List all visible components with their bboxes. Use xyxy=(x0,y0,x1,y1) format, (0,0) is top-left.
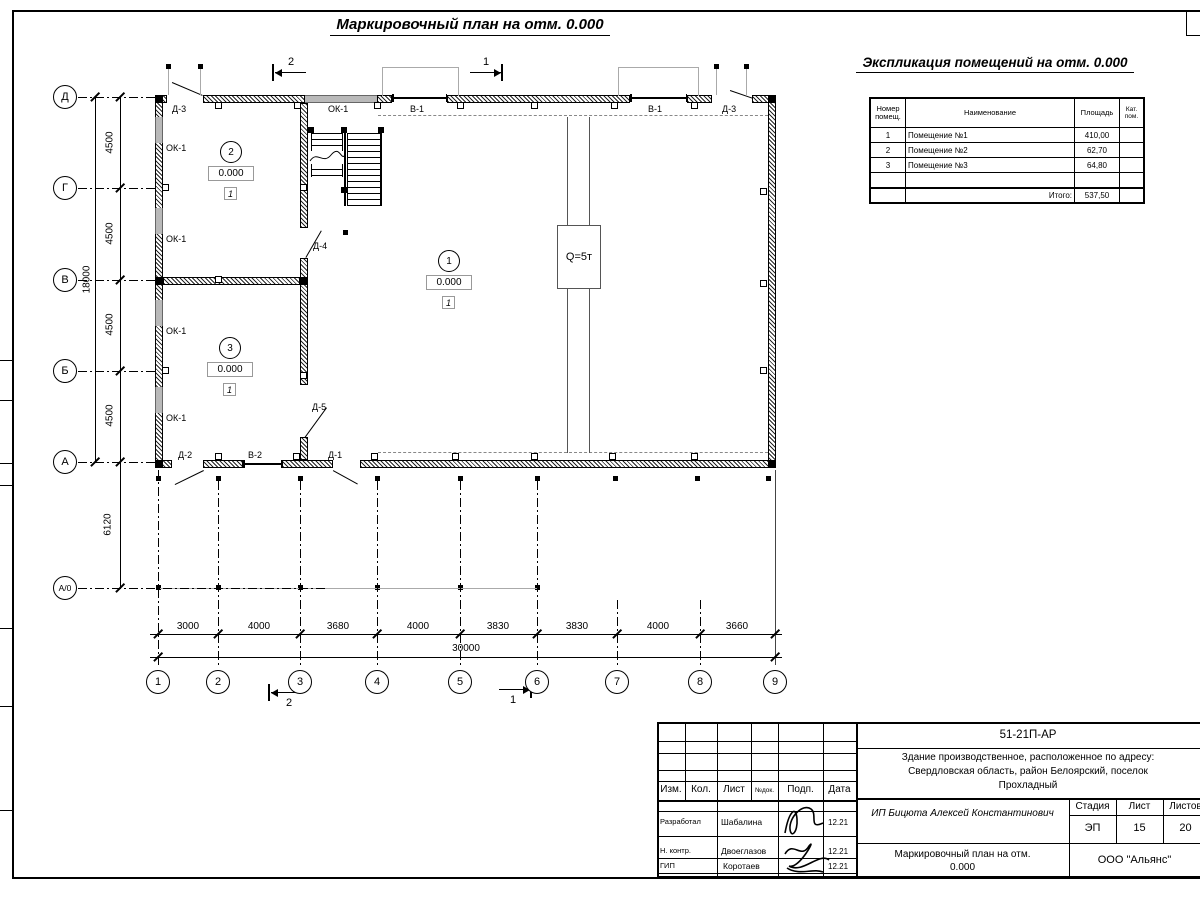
window-label: ОК-1 xyxy=(166,234,186,244)
axis-line xyxy=(537,481,538,665)
room-number-circle: 2 xyxy=(220,141,242,163)
corner-column xyxy=(155,460,163,468)
tb-project-line: Прохладный xyxy=(858,780,1198,791)
cell-name: Помещение №1 xyxy=(906,128,1075,143)
dim-line-h xyxy=(150,634,782,635)
window-ok1-top xyxy=(305,95,377,103)
crane-zone-dashed xyxy=(378,115,768,116)
wall-column xyxy=(760,188,767,195)
dim-value: 4000 xyxy=(229,621,289,632)
junction-column xyxy=(299,277,307,285)
wall-top xyxy=(447,95,630,103)
canopy-column xyxy=(458,476,463,481)
table-row: 1 Помещение №1 410,00 xyxy=(870,128,1144,143)
room-category: 1 xyxy=(442,296,455,309)
wall-column xyxy=(760,367,767,374)
tb-signer-role: Н. контр. xyxy=(660,846,691,855)
wall-column xyxy=(531,453,538,460)
wall-column xyxy=(300,184,307,191)
tb-sheet-value: 15 xyxy=(1116,822,1163,834)
cell-name: Помещение №3 xyxy=(906,158,1075,173)
dim-value: 6120 xyxy=(103,510,114,540)
window-label: ОК-1 xyxy=(328,104,348,114)
corner-doc-box xyxy=(1186,10,1200,36)
room-elevation: 0.000 xyxy=(207,362,253,377)
wall-column xyxy=(531,102,538,109)
axis-col-circle: 8 xyxy=(688,670,712,694)
cell-cat xyxy=(1120,158,1145,173)
cell-area: 64,80 xyxy=(1075,158,1120,173)
dim-value: 4500 xyxy=(105,128,116,158)
stair-divider xyxy=(344,127,346,206)
axis-row-circle: Г xyxy=(53,176,77,200)
column-dot xyxy=(343,230,348,235)
dim-value: 4500 xyxy=(105,310,116,340)
tb-project-line: Свердловская область, район Белоярский, … xyxy=(858,766,1198,777)
window-label: ОК-1 xyxy=(166,413,186,423)
tb-header-kol: Кол. xyxy=(685,784,717,795)
window-label: ОК-1 xyxy=(166,326,186,336)
canopy-column xyxy=(298,476,303,481)
table-row: 2 Помещение №2 62,70 xyxy=(870,143,1144,158)
wall-bottom xyxy=(282,460,333,468)
margin-divider xyxy=(0,706,12,707)
table-row: 3 Помещение №3 64,80 xyxy=(870,158,1144,173)
crane-zone-dashed xyxy=(378,452,768,453)
room-number-circle: 3 xyxy=(219,337,241,359)
door-leaf-d3 xyxy=(172,82,203,96)
section-mark-bar xyxy=(272,64,274,81)
wall-column xyxy=(609,453,616,460)
col-header-num: Номер помещ. xyxy=(870,98,906,128)
margin-divider xyxy=(0,400,12,401)
axis-col-circle: 3 xyxy=(288,670,312,694)
door-label: Д-4 xyxy=(313,241,327,251)
stairwell-wall xyxy=(381,127,382,206)
axis-row-circle: Б xyxy=(53,359,77,383)
dim-line-v-total xyxy=(95,97,96,462)
axis-col-circle: 9 xyxy=(763,670,787,694)
door-label: Д-5 xyxy=(312,402,326,412)
signature xyxy=(779,838,833,876)
margin-divider xyxy=(0,810,12,811)
canopy-column xyxy=(766,476,771,481)
stair-flight-right xyxy=(347,133,381,206)
tb-stage-value: ЭП xyxy=(1069,822,1116,834)
tb-signer-role: ГИП xyxy=(660,861,675,870)
gate-label: В-1 xyxy=(648,104,662,114)
frame-left xyxy=(12,10,14,878)
crane-capacity-label: Q=5т xyxy=(566,251,592,263)
wall-column xyxy=(294,102,301,109)
dim-value: 4000 xyxy=(628,621,688,632)
gate-ramp xyxy=(618,67,699,96)
tb-line xyxy=(657,741,856,742)
stair-column xyxy=(341,187,347,193)
window-ok1-left xyxy=(155,300,163,326)
tb-line xyxy=(657,781,856,782)
wall-column xyxy=(457,102,464,109)
tb-project-line: Здание производственное, расположенное п… xyxy=(858,752,1198,763)
axis-row-circle: В xyxy=(53,268,77,292)
tb-header-podp: Подп. xyxy=(778,784,823,795)
signature xyxy=(781,799,827,841)
tb-doc-number: 51-21П-АР xyxy=(856,729,1200,741)
door-label: Д-3 xyxy=(722,104,736,114)
tb-sheets-value: 20 xyxy=(1163,822,1200,834)
axis-col-circle: 6 xyxy=(525,670,549,694)
col-header-name: Наименование xyxy=(906,98,1075,128)
wall-column xyxy=(215,102,222,109)
axis-line-1 xyxy=(158,470,159,665)
margin-divider xyxy=(0,360,12,361)
tb-drawing-title: Маркировочный план на отм. xyxy=(858,849,1067,860)
cell-cat xyxy=(1120,143,1145,158)
corner-column xyxy=(768,95,776,103)
canopy-column xyxy=(613,476,618,481)
axis-col-circle: 4 xyxy=(365,670,389,694)
drawing-sheet: Маркировочный план на отм. 0.000 Эксплик… xyxy=(0,0,1200,900)
gate-label: В-2 xyxy=(248,450,262,460)
section-arrow-left xyxy=(275,69,282,77)
wall-column xyxy=(162,367,169,374)
axis-col-circle: 7 xyxy=(605,670,629,694)
gate-v1-opening xyxy=(630,97,687,99)
dim-line-v xyxy=(120,97,121,588)
margin-divider xyxy=(0,485,12,486)
tb-line xyxy=(657,753,856,754)
dim-total-value: 30000 xyxy=(436,643,496,654)
door-label: Д-1 xyxy=(328,450,342,460)
tb-header-izm: Изм. xyxy=(657,784,685,795)
tb-header-data: Дата xyxy=(823,784,856,795)
section-arrow-left xyxy=(271,689,278,697)
tb-line xyxy=(856,843,1200,844)
axis-line xyxy=(300,481,301,665)
window-ok1-left xyxy=(155,208,163,234)
window-label: ОК-1 xyxy=(166,143,186,153)
room-category: 1 xyxy=(224,187,237,200)
frame-top xyxy=(12,10,1200,12)
tb-sheet-header: Лист xyxy=(1116,801,1163,812)
wall-column xyxy=(374,102,381,109)
axis-line-9 xyxy=(775,470,776,665)
axis-row-circle: А xyxy=(53,450,77,474)
wall-column xyxy=(760,280,767,287)
tb-sheets-header: Листов xyxy=(1163,801,1200,812)
wall-column xyxy=(215,453,222,460)
landing-edge xyxy=(716,66,717,95)
landing-post xyxy=(198,64,203,69)
wall-interior-vertical xyxy=(300,437,308,460)
cell-num: 2 xyxy=(870,143,906,158)
stair-column xyxy=(308,127,314,133)
cell-num: 3 xyxy=(870,158,906,173)
col-header-area: Площадь xyxy=(1075,98,1120,128)
door-leaf-d3 xyxy=(730,90,753,99)
stair-break-curve xyxy=(308,148,346,166)
gate-ramp xyxy=(382,67,459,96)
door-label: Д-2 xyxy=(178,450,192,460)
tb-client: ИП Бицюта Алексей Константинович xyxy=(858,808,1067,819)
margin-divider xyxy=(0,628,12,629)
gate-label: В-1 xyxy=(410,104,424,114)
plan-title: Маркировочный план на отм. 0.000 xyxy=(320,16,620,36)
dim-value: 3680 xyxy=(308,621,368,632)
section-mark-label: 1 xyxy=(510,694,516,706)
tb-company: ООО "Альянс" xyxy=(1069,854,1200,866)
total-label: Итого: xyxy=(906,188,1075,203)
landing-post xyxy=(166,64,171,69)
canopy-column xyxy=(695,476,700,481)
canopy-column xyxy=(216,476,221,481)
tb-signer-date: 12.21 xyxy=(828,818,848,827)
corner-column xyxy=(155,95,163,103)
wall-column xyxy=(691,102,698,109)
tb-header-ndok: №док. xyxy=(751,787,778,794)
wall-interior-vertical xyxy=(300,103,308,228)
dim-value: 3830 xyxy=(547,621,607,632)
room-elevation: 0.000 xyxy=(208,166,254,181)
axis-line xyxy=(460,481,461,665)
tb-stage-header: Стадия xyxy=(1069,801,1116,812)
dim-value: 4500 xyxy=(105,401,116,431)
landing-edge xyxy=(746,66,747,95)
table-total-row: Итого: 537,50 xyxy=(870,188,1144,203)
dim-value: 3830 xyxy=(468,621,528,632)
tb-signer-name: Двоеглазов xyxy=(721,846,766,856)
wall-right xyxy=(768,95,776,468)
tb-line xyxy=(1069,815,1200,816)
canopy-column xyxy=(375,476,380,481)
wall-column xyxy=(293,453,300,460)
tb-signer-role: Разработал xyxy=(660,817,701,826)
tb-line xyxy=(657,770,856,771)
axis-stub xyxy=(78,588,328,589)
wall-bottom xyxy=(203,460,243,468)
axis-line xyxy=(218,481,219,665)
wall-column xyxy=(162,184,169,191)
door-label: Д-3 xyxy=(172,104,186,114)
wall-column xyxy=(611,102,618,109)
section-mark-label: 2 xyxy=(286,697,292,709)
axis-col-circle: 5 xyxy=(448,670,472,694)
margin-divider xyxy=(0,463,12,464)
dim-line-h-total xyxy=(150,657,782,658)
cell-cat xyxy=(1120,128,1145,143)
window-ok1-left xyxy=(155,387,163,413)
canopy-column xyxy=(535,476,540,481)
explication-table: Номер помещ. Наименование Площадь Кат. п… xyxy=(869,97,1145,204)
stair-column xyxy=(378,127,384,133)
col-header-cat: Кат. пом. xyxy=(1120,98,1145,128)
cell-name: Помещение №2 xyxy=(906,143,1075,158)
door-leaf-d2 xyxy=(175,470,204,485)
axis-col-circle: 2 xyxy=(206,670,230,694)
wall-column xyxy=(452,453,459,460)
tb-drawing-title: 0.000 xyxy=(858,862,1067,873)
gate-v1-opening xyxy=(392,97,447,99)
door-leaf-d1 xyxy=(333,470,358,485)
dim-total-value: 18000 xyxy=(82,260,93,300)
landing-edge xyxy=(168,66,169,95)
wall-column xyxy=(371,453,378,460)
table-row-empty xyxy=(870,173,1144,189)
table-header-row: Номер помещ. Наименование Площадь Кат. п… xyxy=(870,98,1144,128)
tb-line xyxy=(856,748,1200,749)
section-mark-label: 1 xyxy=(483,56,489,68)
wall-column xyxy=(691,453,698,460)
axis-row-circle: А/0 xyxy=(53,576,77,600)
dim-value: 3660 xyxy=(707,621,767,632)
explication-title: Экспликация помещений на отм. 0.000 xyxy=(840,55,1150,73)
window-ok1-left xyxy=(155,117,163,143)
cell-area: 62,70 xyxy=(1075,143,1120,158)
landing-post xyxy=(744,64,749,69)
axis-row-circle: Д xyxy=(53,85,77,109)
junction-column xyxy=(156,277,164,285)
crane-bridge: Q=5т xyxy=(557,225,601,289)
tb-header-list: Лист xyxy=(717,784,751,795)
section-arrow-right xyxy=(494,69,501,77)
total-area: 537,50 xyxy=(1075,188,1120,203)
tb-signer-name: Шабалина xyxy=(721,817,762,827)
cell-num: 1 xyxy=(870,128,906,143)
tb-line xyxy=(856,798,1200,800)
dim-value: 4500 xyxy=(105,219,116,249)
section-mark-bar xyxy=(268,684,270,701)
wall-column xyxy=(300,372,307,379)
corner-column xyxy=(768,460,776,468)
gate-v2-opening xyxy=(243,463,282,465)
room-category: 1 xyxy=(223,383,236,396)
axis-col-circle: 1 xyxy=(146,670,170,694)
stair-column xyxy=(341,127,347,133)
section-mark-label: 2 xyxy=(288,56,294,68)
landing-edge xyxy=(200,66,201,95)
wall-bottom xyxy=(360,460,776,468)
wall-interior-horizontal xyxy=(163,277,300,285)
dim-value: 4000 xyxy=(388,621,448,632)
landing-post xyxy=(714,64,719,69)
wall-column xyxy=(215,276,222,283)
room-elevation: 0.000 xyxy=(426,275,472,290)
tb-signer-name: Коротаев xyxy=(723,861,760,871)
dim-value: 3000 xyxy=(158,621,218,632)
section-mark-bar xyxy=(501,64,503,81)
cell-area: 410,00 xyxy=(1075,128,1120,143)
axis-line xyxy=(377,481,378,665)
room-number-circle: 1 xyxy=(438,250,460,272)
